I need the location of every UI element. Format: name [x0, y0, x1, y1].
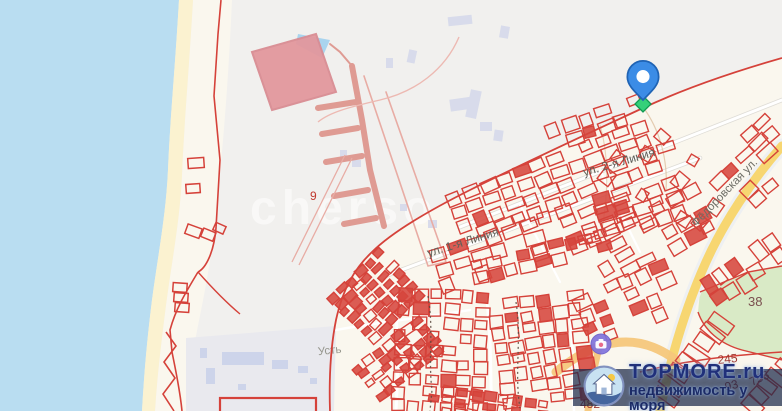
map-canvas[interactable]: cherso Усть	[0, 0, 782, 411]
street-label-ust: Усть	[317, 344, 342, 358]
poi-camera-icon[interactable]	[590, 333, 612, 355]
watermark-site-name: TOPMORE.ru	[629, 362, 782, 382]
location-pin-icon[interactable]	[623, 59, 663, 115]
topmore-logo-icon	[583, 365, 625, 407]
watermark-banner: TOPMORE.ru недвижимость у моря	[573, 369, 782, 406]
watermark-subtitle: недвижимость у моря	[629, 384, 782, 411]
pin-hole	[636, 70, 649, 83]
berth-number-9: 9	[310, 189, 317, 203]
parcel-number-38: 38	[748, 294, 762, 309]
